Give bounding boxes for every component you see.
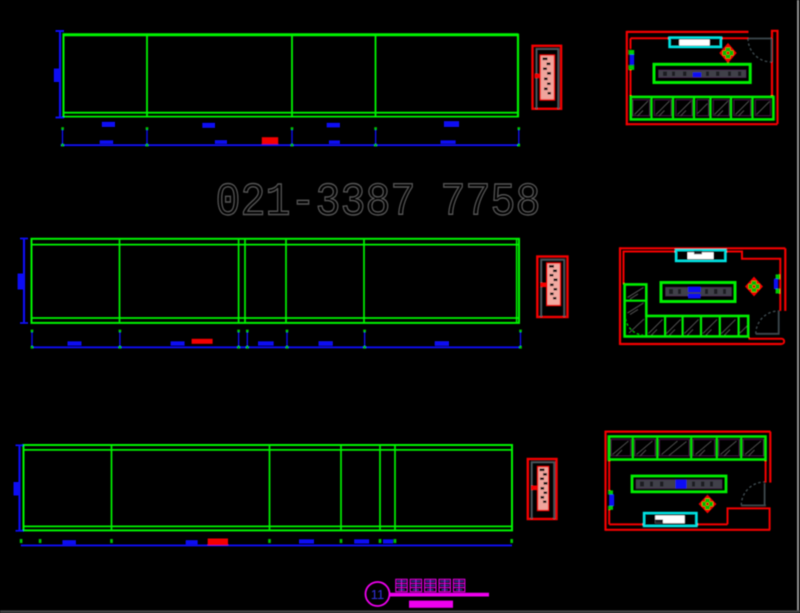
svg-text:021-3387 7758: 021-3387 7758	[216, 177, 541, 229]
svg-text:11: 11	[371, 587, 385, 602]
